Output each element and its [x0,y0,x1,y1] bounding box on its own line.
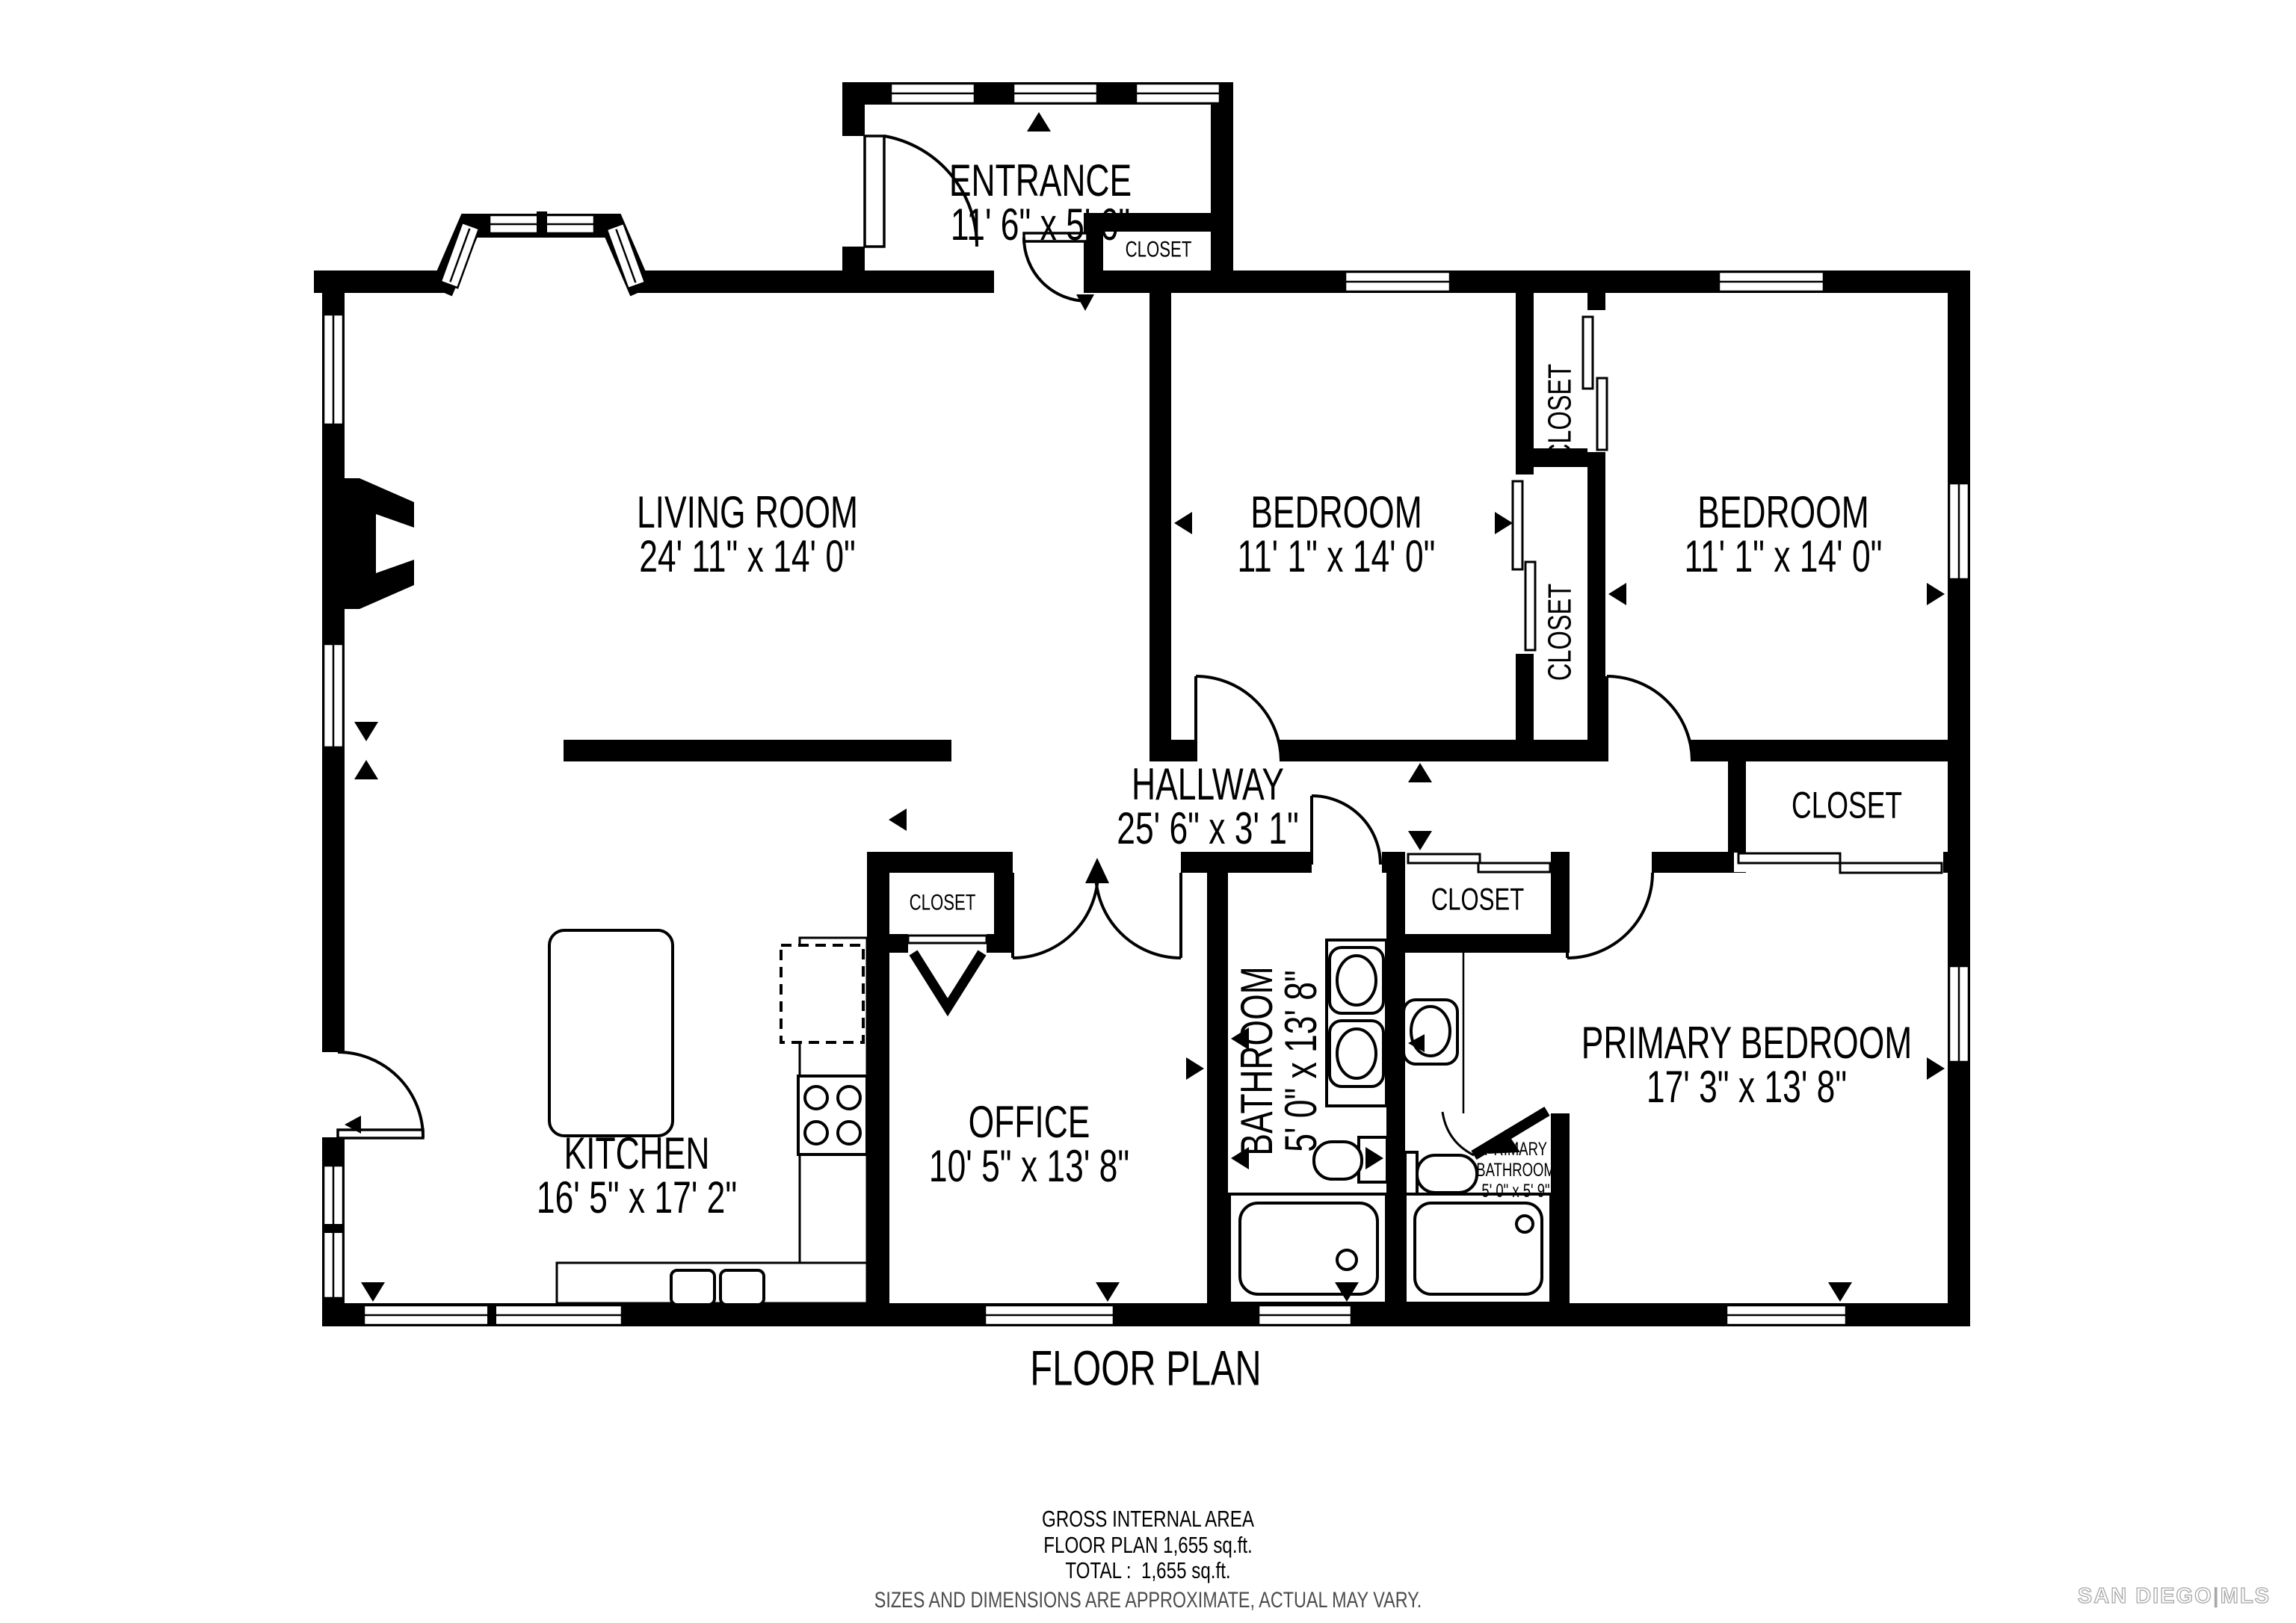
room-label-living-room: LIVING ROOM24' 11" x 14' 0" [637,491,858,579]
disclaimer-line: SIZES AND DIMENSIONS ARE APPROXIMATE, AC… [253,1589,2043,1613]
office-door-left-arc [1013,873,1098,958]
closet-label-primary: CLOSET [1431,883,1524,914]
sliding-doors [908,310,1943,943]
room-label-office: OFFICE10' 5" x 13' 8" [929,1101,1129,1189]
watermark-brand: SAN DIEGO [2078,1584,2213,1608]
room-label-bedroom-left: BEDROOM11' 1" x 14' 0" [1238,491,1436,579]
room-label-primary-bathroom: PRIMARY BATHROOM 5' 0" x 5' 9" [1476,1139,1555,1202]
mls-watermark: SAN DIEGO|MLS [2078,1584,2271,1609]
watermark-suffix: MLS [2221,1584,2271,1608]
room-label-hallway: HALLWAY25' 6" x 3' 1" [1117,763,1298,851]
bay-window [441,211,645,291]
floor-plan-area-line: FLOOR PLAN 1,655 sq.ft. [253,1533,2043,1557]
room-label-bedroom-right: BEDROOM11' 1" x 14' 0" [1685,491,1883,579]
office-closet-bifold-door [913,953,982,1007]
shower [1405,1194,1551,1303]
room-label-primary-bedroom: PRIMARY BEDROOM17' 3" x 13' 8" [1581,1021,1912,1110]
room-label-entrance: ENTRANCE11' 6" x 5' 6" [949,159,1132,247]
stove [798,1076,867,1154]
fireplace [345,478,414,609]
closet-label-office: CLOSET [910,891,976,913]
closet-label-bedroom-left: CLOSET [1543,584,1576,681]
closet-label-bedroom-right: CLOSET [1543,364,1576,461]
floor-plan-page: ENTRANCE11' 6" x 5' 6" LIVING ROOM24' 11… [0,0,2296,1623]
room-label-bathroom: BATHROOM5' 0" x 13' 8" [1235,966,1324,1155]
total-area-line: TOTAL : 1,655 sq.ft. [253,1559,2043,1583]
closet-label-entrance: CLOSET [1126,238,1192,260]
area-summary: GROSS INTERNAL AREA FLOOR PLAN 1,655 sq.… [253,1505,2043,1614]
bedroom-right-door-arc [1607,676,1692,761]
primary-bedroom-door-arc [1567,873,1652,958]
refrigerator [781,945,863,1042]
bathroom-sink [1337,1029,1376,1078]
kitchen-island [549,930,673,1136]
bathtub [1229,1194,1386,1303]
gross-area-line: GROSS INTERNAL AREA [253,1507,2043,1531]
bathroom-sink [1337,956,1376,1005]
closet-label-hall: CLOSET [1792,788,1902,824]
primary-sink [1411,1007,1450,1056]
bathroom-door-arc [1312,796,1380,865]
page-title: FLOOR PLAN [1030,1344,1261,1393]
kitchen-fixtures [549,930,867,1305]
room-label-kitchen: KITCHEN16' 5" x 17' 2" [537,1132,737,1220]
entrance-door-leaf [865,136,884,247]
office-door-right-arc [1096,873,1181,958]
primary-toilet [1405,1152,1477,1196]
bedroom-left-door-arc [1196,676,1281,761]
